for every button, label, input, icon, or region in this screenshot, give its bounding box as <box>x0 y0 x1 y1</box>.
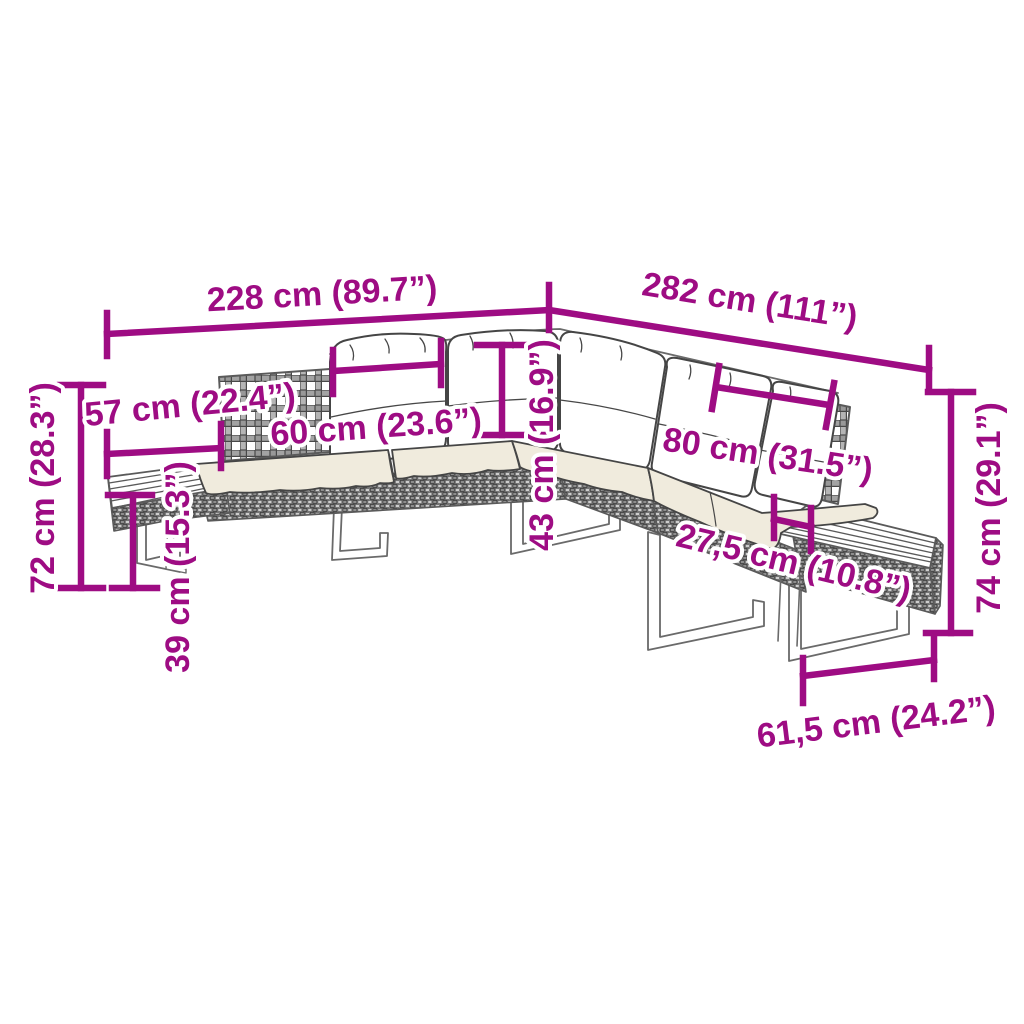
svg-text:72 cm (28.3”): 72 cm (28.3”) <box>24 382 62 594</box>
svg-text:39 cm (15.3”): 39 cm (15.3”) <box>159 461 197 673</box>
svg-text:74 cm (29.1”): 74 cm (29.1”) <box>970 402 1008 614</box>
svg-text:282 cm (111”): 282 cm (111”) <box>640 265 861 337</box>
svg-text:228 cm (89.7”): 228 cm (89.7”) <box>206 269 438 320</box>
svg-text:43 cm (16.9”): 43 cm (16.9”) <box>523 339 561 551</box>
svg-text:61,5 cm (24.2”): 61,5 cm (24.2”) <box>755 689 998 756</box>
